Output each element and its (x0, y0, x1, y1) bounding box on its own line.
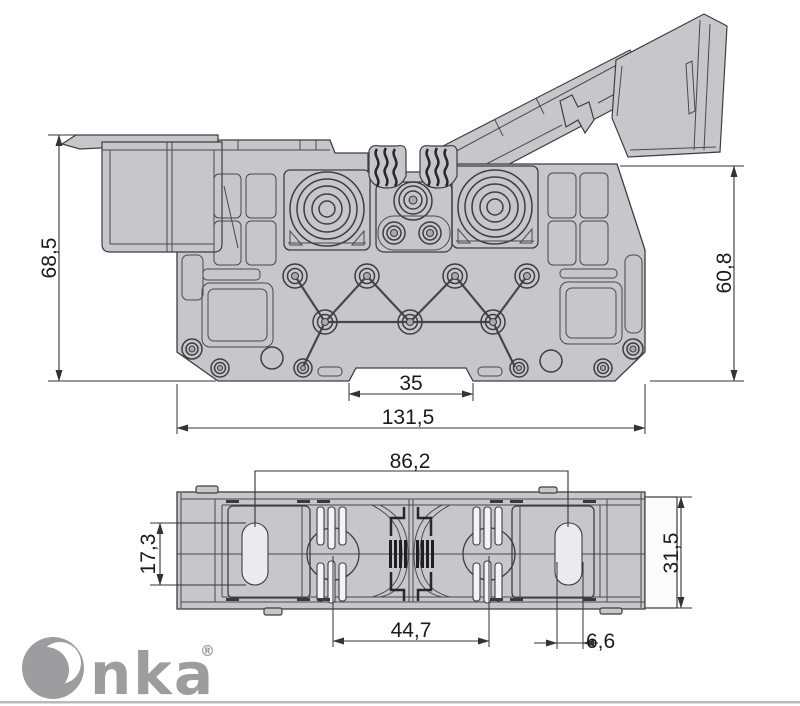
dim-mounting-hole-spacing: 86,2 (390, 450, 431, 473)
dim-din-notch-width: 35 (399, 372, 422, 395)
page-bottom-border (0, 701, 800, 704)
logo-text: nka (90, 640, 215, 706)
logo-o-icon (22, 637, 84, 699)
dim-body-depth: 31,5 (660, 533, 683, 574)
dim-overall-width: 131,5 (382, 406, 435, 429)
side-flap (62, 135, 222, 252)
right-oval-slot (555, 523, 582, 585)
dim-contact-center-spacing: 44,7 (391, 619, 432, 642)
dim-height-with-cover: 68,5 (38, 238, 61, 279)
logo-registered-mark: ® (200, 642, 215, 660)
tab-bottom-left (264, 608, 282, 615)
tab-top-left (196, 486, 218, 493)
dim-slot-width: 6,6 (586, 630, 615, 653)
dim-slot-height: 17,3 (137, 534, 160, 575)
drawing-page: 68,5 60,8 35 131,5 (0, 0, 800, 706)
brand-logo: nka ® (22, 637, 215, 706)
technical-drawing: 68,5 60,8 35 131,5 (0, 0, 800, 706)
side-view: 68,5 60,8 35 131,5 (38, 14, 744, 434)
tab-bottom-right (600, 608, 622, 614)
dim-body-height: 60,8 (713, 253, 736, 294)
tab-top-right (539, 487, 557, 493)
left-oval-slot (242, 523, 268, 585)
bottom-view: 86,2 17,3 31,5 44,7 6,6 (137, 450, 692, 653)
